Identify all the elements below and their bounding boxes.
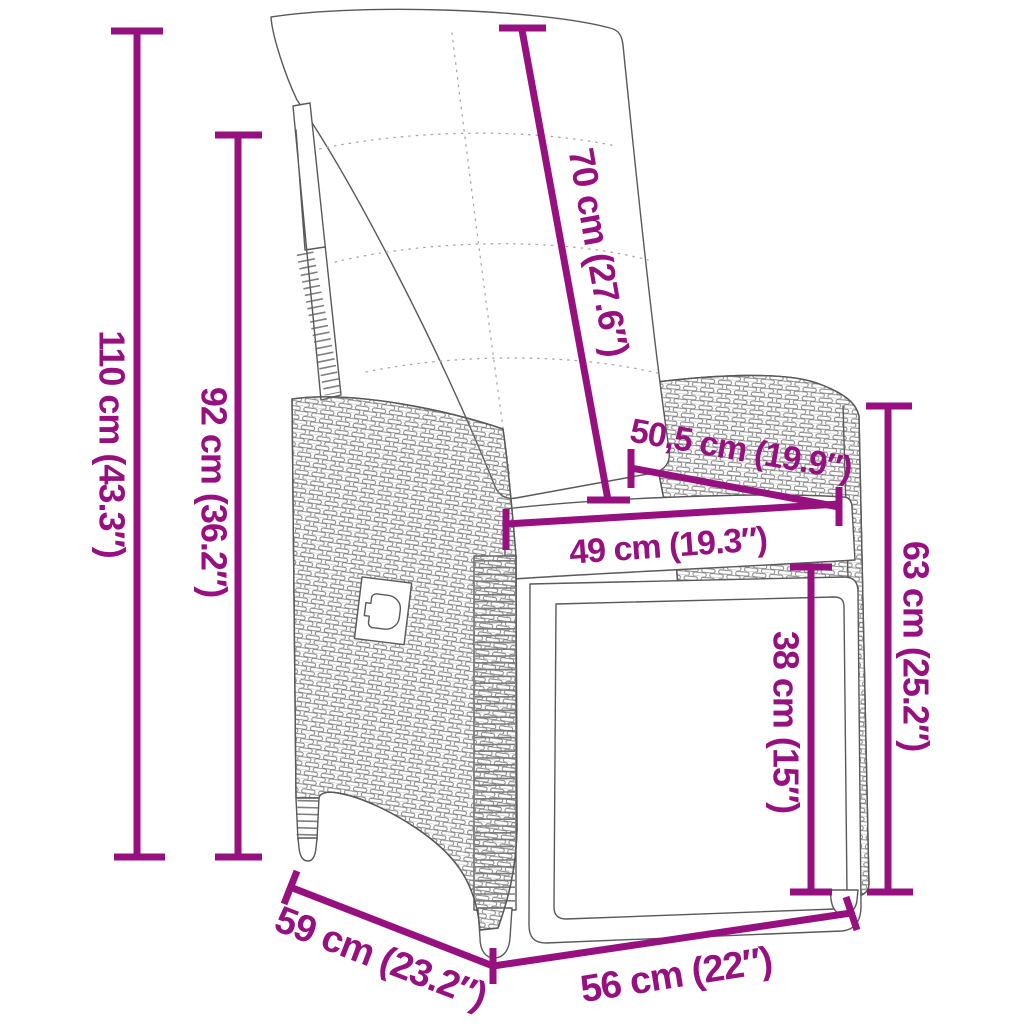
back-left-foot xyxy=(298,838,317,861)
back-left-leg xyxy=(296,798,319,840)
product-dimension-diagram: 110 cm (43.3″) 92 cm (36.2″) 70 cm (27.6… xyxy=(0,0,1024,1024)
dim-label-height-total: 110 cm (43.3″) xyxy=(91,330,132,557)
left-side-panel xyxy=(292,397,517,930)
dim-label-height-backrest: 92 cm (36.2″) xyxy=(193,387,234,597)
dim-label-footrest-height: 38 cm (15″) xyxy=(765,631,806,813)
dimension-diagram-svg: 110 cm (43.3″) 92 cm (36.2″) 70 cm (27.6… xyxy=(0,0,1024,1024)
dim-label-armrest-height: 63 cm (25.2″) xyxy=(895,541,936,751)
dim-label-base-depth: 59 cm (23.2″) xyxy=(269,899,492,1018)
recline-knob xyxy=(354,577,411,645)
